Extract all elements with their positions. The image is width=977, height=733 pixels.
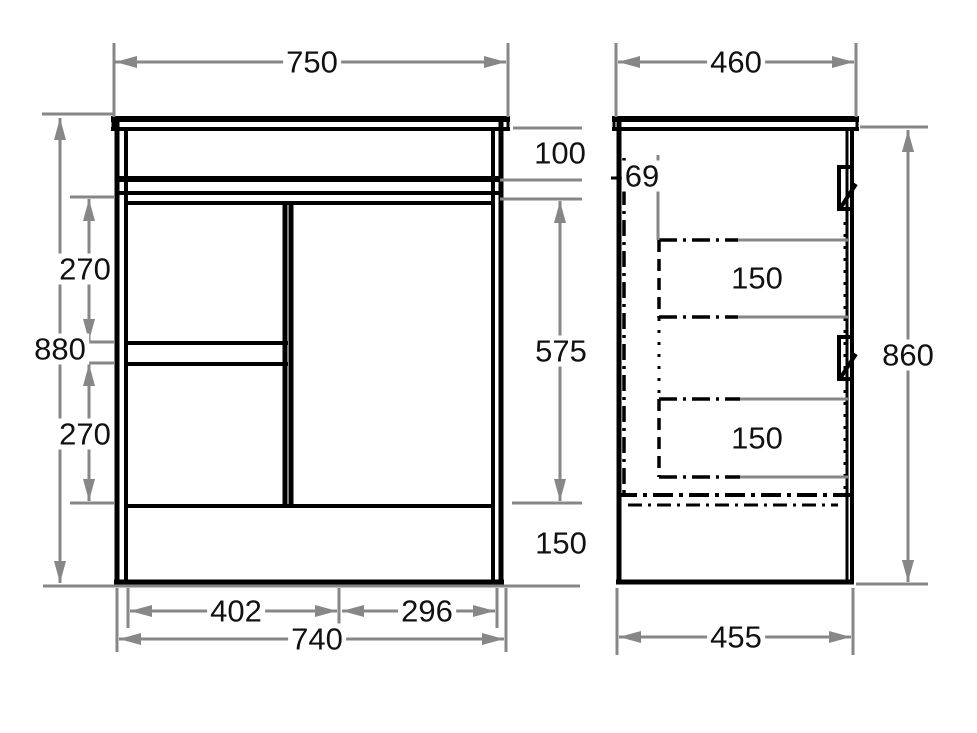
dim-label-kickboard-height: 150	[532, 528, 590, 559]
dim-label-upper-drawer-height: 270	[56, 254, 114, 285]
dim-label-front-top-section: 100	[531, 138, 589, 169]
dim-label-door-height: 575	[532, 336, 590, 367]
dim-label-bottom-right-width: 296	[398, 596, 456, 627]
dim-label-upper-drawer-depth: 150	[728, 263, 786, 294]
dimension-lines	[60, 62, 908, 639]
dim-label-lower-drawer-height: 270	[56, 419, 114, 450]
front-view-outline	[111, 116, 510, 584]
dim-label-front-top-width: 750	[283, 47, 341, 78]
drawing-linework	[0, 0, 977, 733]
technical-drawing: 750 880 100 270 270 575 150 402 296 740 …	[0, 0, 977, 733]
dim-label-front-overall-height: 880	[31, 334, 89, 365]
dim-label-side-body-height: 860	[879, 340, 937, 371]
dim-label-side-top-depth: 460	[707, 47, 765, 78]
dim-label-bottom-width: 740	[288, 624, 346, 655]
dim-label-bottom-left-width: 402	[207, 596, 265, 627]
dim-label-side-bottom-depth: 455	[707, 622, 765, 653]
dim-label-lower-drawer-depth: 150	[728, 423, 786, 454]
extension-lines	[42, 43, 928, 655]
dim-label-side-top-inset: 69	[622, 161, 662, 192]
